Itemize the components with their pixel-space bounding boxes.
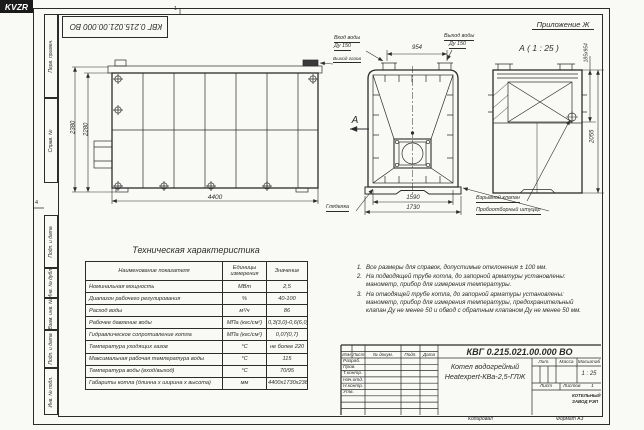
note-text: Все размеры для справок, допустимые откл…	[366, 264, 594, 272]
table-row: Номинальная мощностьМВт2,5	[86, 281, 308, 293]
dim-flue-size: 185х954	[584, 36, 590, 70]
table-row: Рабочее давление водыМПа (кгс/см²)0,3(3,…	[86, 317, 308, 329]
sight-glass-label: Гляделка	[326, 205, 349, 212]
table-row: Гидравлическое сопротивление котлаМПа (к…	[86, 329, 308, 341]
spec-value: 70/95	[267, 365, 308, 377]
drawing-sheet: Перв. примен. Справ. № Подп. и дата Инв.…	[0, 0, 644, 430]
kvzr-logo-text: KVZR	[5, 2, 28, 12]
strip-cell-perv-primen: Перв. примен.	[44, 14, 58, 98]
spec-table-title: Техническая характеристика	[85, 246, 307, 256]
spec-units: %	[223, 293, 267, 305]
format-label: Формат А3	[556, 416, 583, 422]
spec-name: Гидравлическое сопротивление котла	[86, 329, 223, 341]
spec-units: МВт	[223, 281, 267, 293]
product-name-line1: Котел водогрейный	[438, 362, 532, 371]
water-outlet-label: Выход воды	[444, 34, 474, 41]
tb-col-data: Дата	[420, 352, 438, 357]
tb-role-nachotd: Нач.отд.	[343, 378, 363, 383]
list-item: 2. На подводящей трубе котла, до запорно…	[352, 273, 594, 289]
dim-side-outer-height: 2380	[71, 112, 78, 142]
tb-scale-label: Масштаб	[577, 360, 601, 365]
spec-units: м³/ч	[223, 305, 267, 317]
dim-nozzle-spacing: 954	[400, 45, 434, 52]
spec-units: °С	[223, 341, 267, 353]
list-item: 1. Все размеры для справок, допустимые о…	[352, 264, 594, 272]
section-view-title: А ( 1 : 25 )	[513, 44, 565, 53]
spec-units: МПа (кгс/см²)	[223, 317, 267, 329]
spec-name: Габариты котла (длинна х ширина х высота…	[86, 377, 223, 389]
spec-name: Диапазон рабочего регулирования	[86, 293, 223, 305]
spec-name: Температура уходящих газов	[86, 341, 223, 353]
explosion-valve-label: Взрывной клапан	[476, 196, 520, 203]
note-number: 3.	[352, 291, 362, 316]
spec-table: Наименование показателя Единицы измерени…	[85, 261, 308, 390]
tb-scale-value: 1 : 25	[577, 371, 601, 377]
spec-value: 2,5	[267, 281, 308, 293]
strip-cell-inv-dubl: Инв. № дубл.	[44, 268, 58, 298]
sampling-fitting-label: Пробоотборный штуцер	[476, 208, 541, 215]
section-mark-letter: А	[349, 115, 361, 126]
tb-sheet-label: Лист	[532, 384, 560, 389]
spec-value: не более 220	[267, 341, 308, 353]
kvzr-logo: KVZR	[0, 0, 33, 13]
strip-label: Взам. инв. №	[48, 299, 54, 330]
doc-number-stamp-text: КВГ 0.215.021.00.000 ВО	[63, 22, 169, 31]
annex-label: Приложение Ж	[532, 21, 594, 30]
strip-cell-podp-data-1: Подп. и дата	[44, 215, 58, 268]
copied-label: Копировал	[468, 416, 493, 422]
tb-role-nkontr: Н.контр.	[343, 384, 363, 389]
water-inlet-dn-label: Ду 150	[334, 44, 351, 51]
spec-name: Температура воды (вход/выход)	[86, 365, 223, 377]
note-number: 2.	[352, 273, 362, 289]
spec-value: 4400х1730х2380	[267, 377, 308, 389]
dim-side-length: 4400	[195, 194, 235, 201]
gas-outlet-label: Выход газов	[333, 57, 361, 63]
note-text: На отводящей трубе котла, до запорной ар…	[366, 291, 594, 316]
water-outlet-dn-label: Ду 150	[449, 42, 466, 49]
spec-table-header-row: Наименование показателя Единицы измерени…	[86, 262, 308, 281]
logo-caption-line2: ЗАВОД РЭП	[572, 399, 602, 405]
spec-units: °С	[223, 353, 267, 365]
title-block-doc-number: КВГ 0.215.021.00.000 ВО	[438, 347, 601, 357]
dim-front-inner-width: 1590	[398, 195, 428, 202]
doc-number-stamp: КВГ 0.215.021.00.000 ВО	[62, 16, 168, 38]
table-row: Диапазон рабочего регулирования%40-100	[86, 293, 308, 305]
spec-units: °С	[223, 365, 267, 377]
table-row: Габариты котла (длинна х ширина х высота…	[86, 377, 308, 389]
strip-label: Инв. № дубл.	[48, 268, 54, 299]
strip-label: Подп. и дата	[48, 226, 54, 257]
strip-label: Перв. примен.	[48, 39, 54, 72]
strip-cell-vzam-inv: Взам. инв. №	[44, 298, 58, 330]
logo-caption: КОТЕЛЬНЫЙ ЗАВОД РЭП	[572, 393, 602, 404]
spec-value: 115	[267, 353, 308, 365]
spec-units: МПа (кгс/см²)	[223, 329, 267, 341]
strip-label: Справ. №	[48, 129, 54, 152]
spec-value: 40-100	[267, 293, 308, 305]
strip-label: Инв. № подл.	[48, 376, 54, 407]
tb-sheets-label: Листов	[563, 384, 580, 389]
strip-cell-sprav-no: Справ. №	[44, 98, 58, 183]
tb-col-podp: Подп.	[401, 352, 420, 357]
tb-col-izm: Изм	[341, 352, 352, 357]
note-text: На подводящей трубе котла, до запорной а…	[366, 273, 594, 289]
tb-role-razrab: Разраб.	[343, 359, 360, 364]
zone-marker-left: 4	[35, 200, 38, 206]
spec-value: 86	[267, 305, 308, 317]
spec-units: мм	[223, 377, 267, 389]
tb-col-list: Лист	[352, 352, 365, 357]
spec-col-units: Единицы измерения	[223, 262, 267, 281]
spec-name: Расход воды	[86, 305, 223, 317]
spec-col-value: Значение	[267, 262, 308, 281]
dim-side-inner-height: 2280	[84, 114, 91, 144]
tb-lit-label: Лит.	[532, 360, 556, 365]
table-row: Температура уходящих газов°Сне более 220	[86, 341, 308, 353]
spec-name: Рабочее давление воды	[86, 317, 223, 329]
dim-section-height: 2055	[590, 121, 597, 151]
strip-label: Подп. и дата	[48, 333, 54, 364]
spec-name: Максимальная рабочая температура воды	[86, 353, 223, 365]
spec-name: Номинальная мощность	[86, 281, 223, 293]
tb-role-tkontr: Т.контр.	[343, 371, 362, 376]
zone-marker-top: 1	[174, 6, 177, 12]
strip-cell-podp-data-2: Подп. и дата	[44, 330, 58, 368]
spec-col-name: Наименование показателя	[86, 262, 223, 281]
table-row: Расход водым³/ч86	[86, 305, 308, 317]
table-row: Максимальная рабочая температура воды°С1…	[86, 353, 308, 365]
list-item: 3. На отводящей трубе котла, до запорной…	[352, 291, 594, 316]
spec-value: 0,3(3,0)-0,6(6,0)	[267, 317, 308, 329]
tb-col-docum: № докум.	[365, 352, 401, 357]
tb-role-utv: Утв.	[343, 390, 354, 395]
note-number: 1.	[352, 264, 362, 272]
tb-role-prov: Пров.	[343, 365, 356, 370]
tb-sheets-value: 1	[586, 384, 599, 389]
strip-cell-inv-podl: Инв. № подл.	[44, 368, 58, 415]
dim-front-outer-width: 1730	[398, 205, 428, 212]
logo-caption-line1: КОТЕЛЬНЫЙ	[572, 393, 602, 399]
table-row: Температура воды (вход/выход)°С70/95	[86, 365, 308, 377]
water-inlet-label: Вход воды	[334, 36, 360, 43]
spec-value: 0,07(0,7)	[267, 329, 308, 341]
notes-list: 1. Все размеры для справок, допустимые о…	[352, 264, 594, 316]
tb-mass-label: Масса	[556, 360, 577, 365]
product-name-line2: Heatexpert-КВа-2,5-ГЛЖ	[438, 372, 532, 381]
